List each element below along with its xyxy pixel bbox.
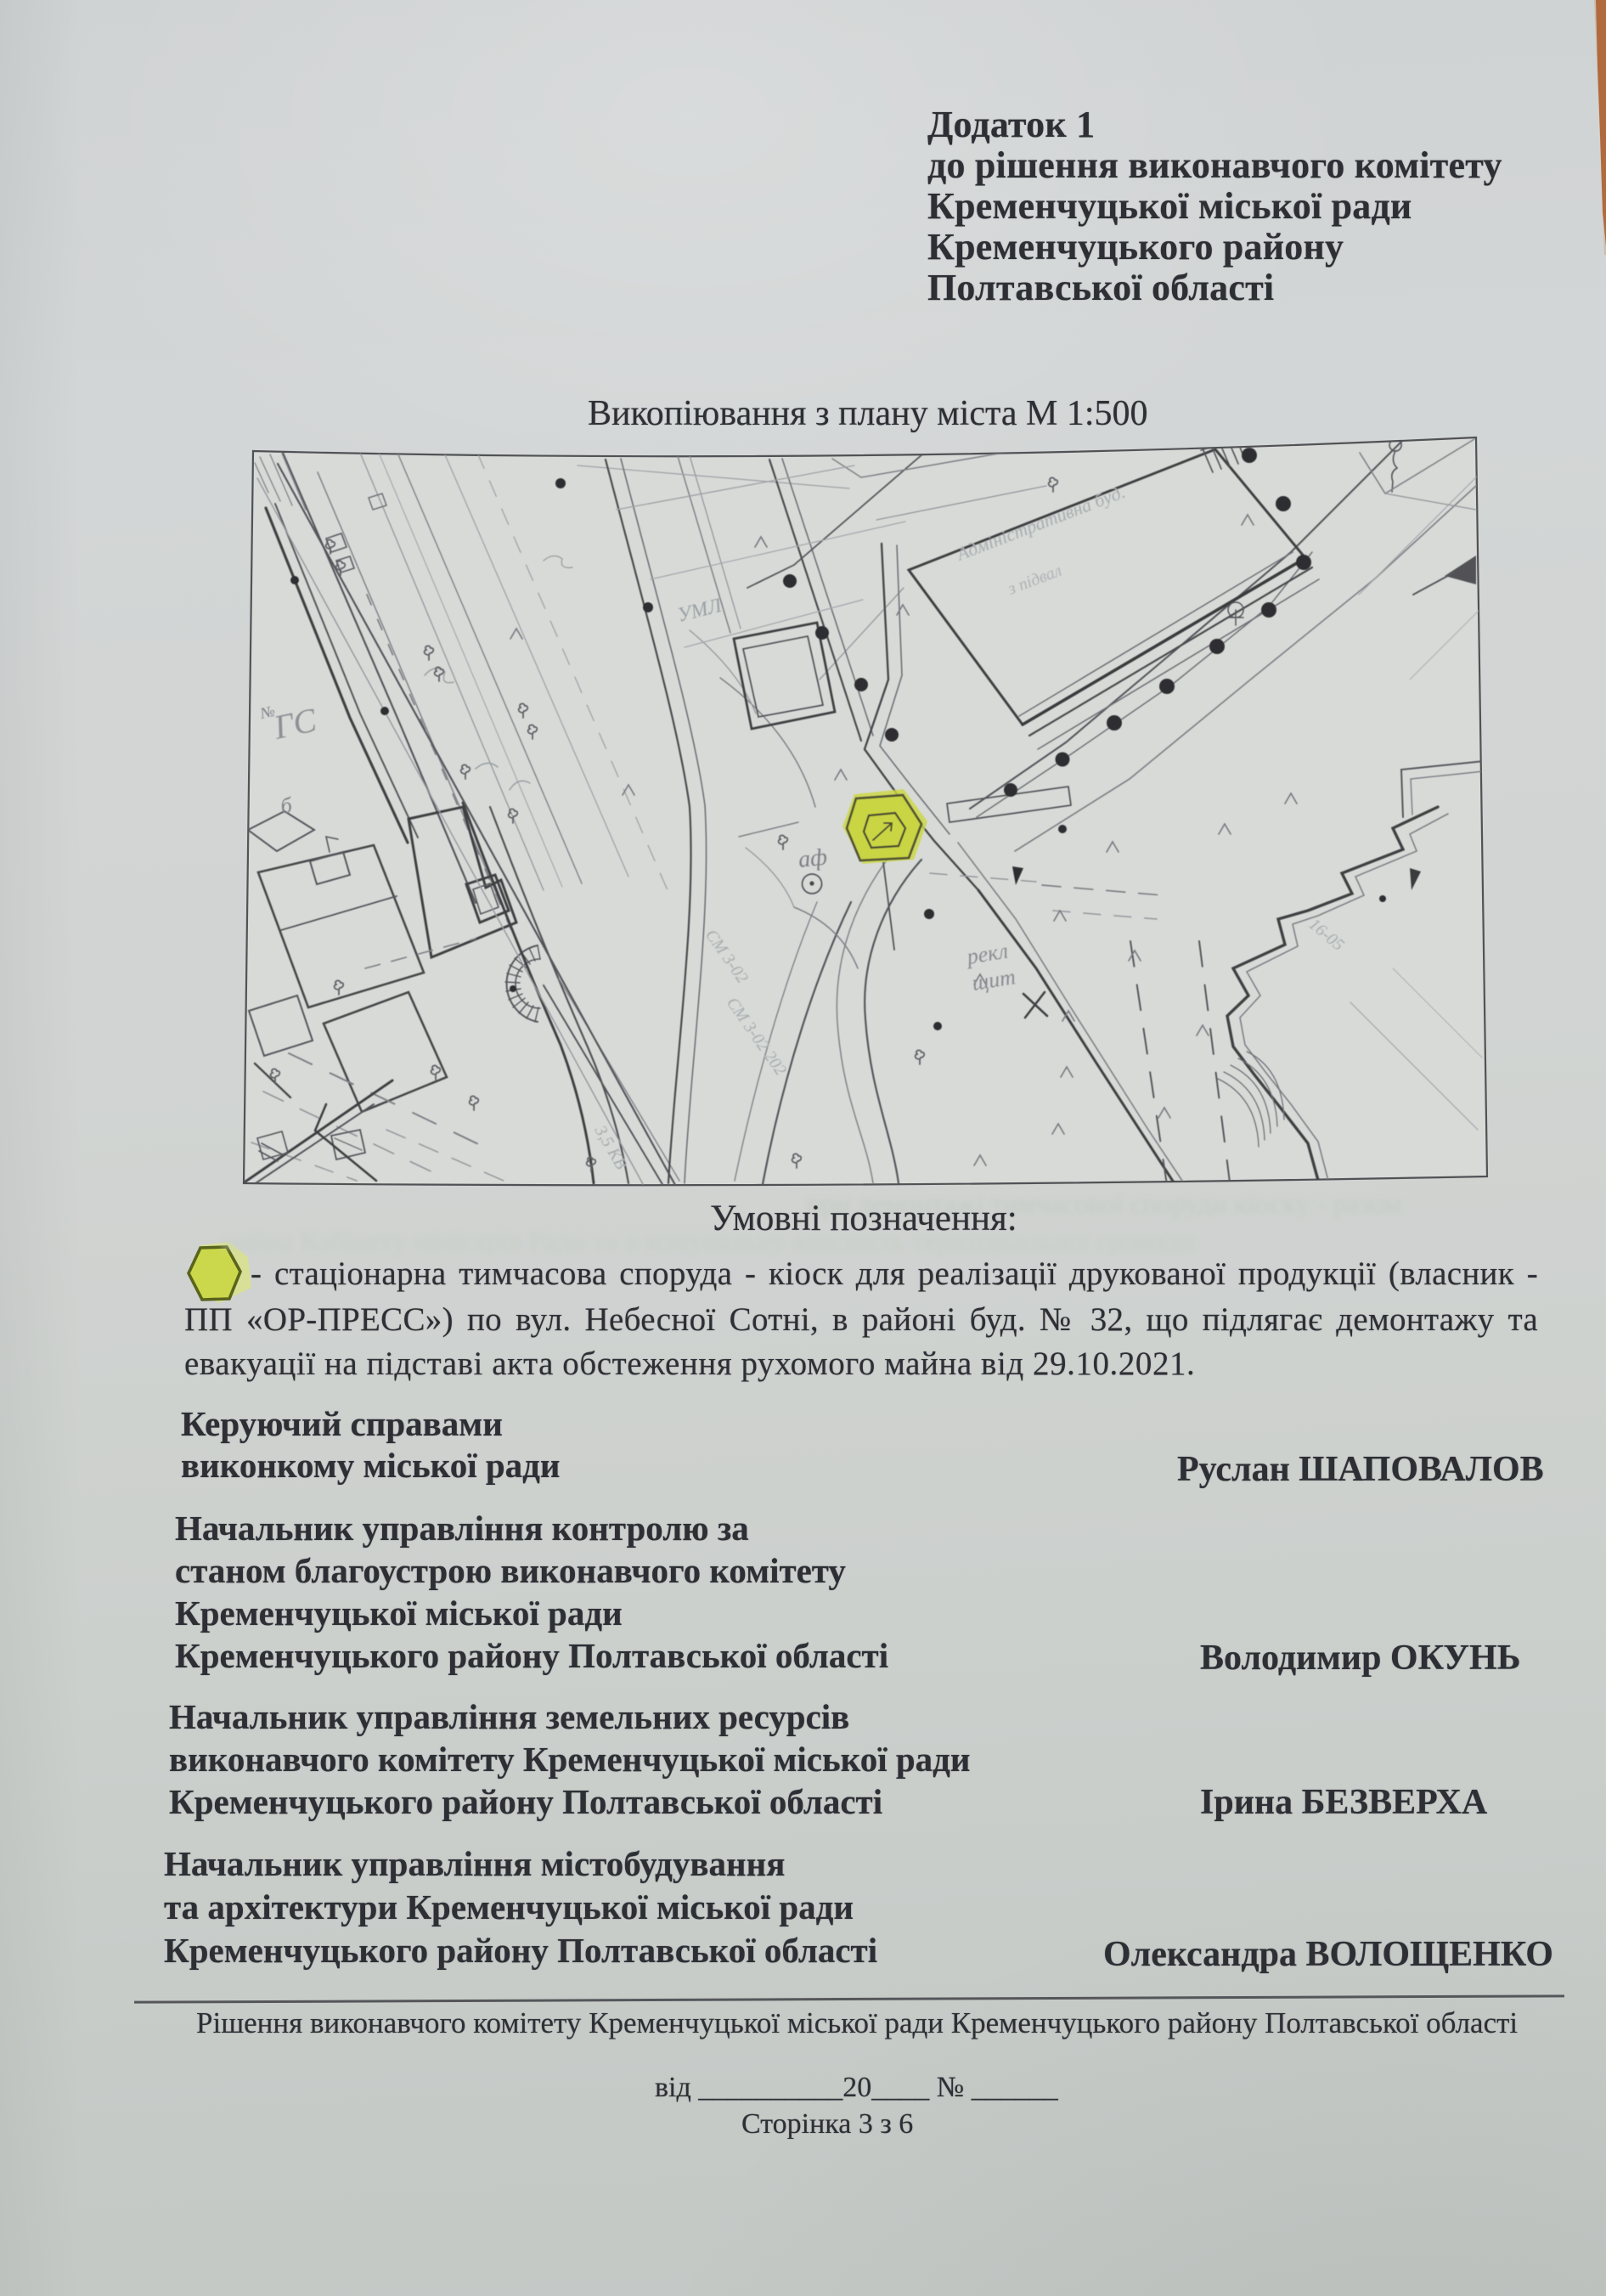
svg-text:аф: аф (797, 844, 828, 873)
